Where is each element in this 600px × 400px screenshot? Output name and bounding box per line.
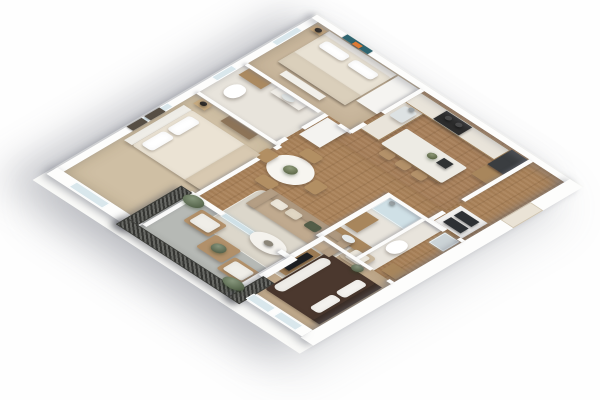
floor-plan-render — [0, 0, 600, 400]
